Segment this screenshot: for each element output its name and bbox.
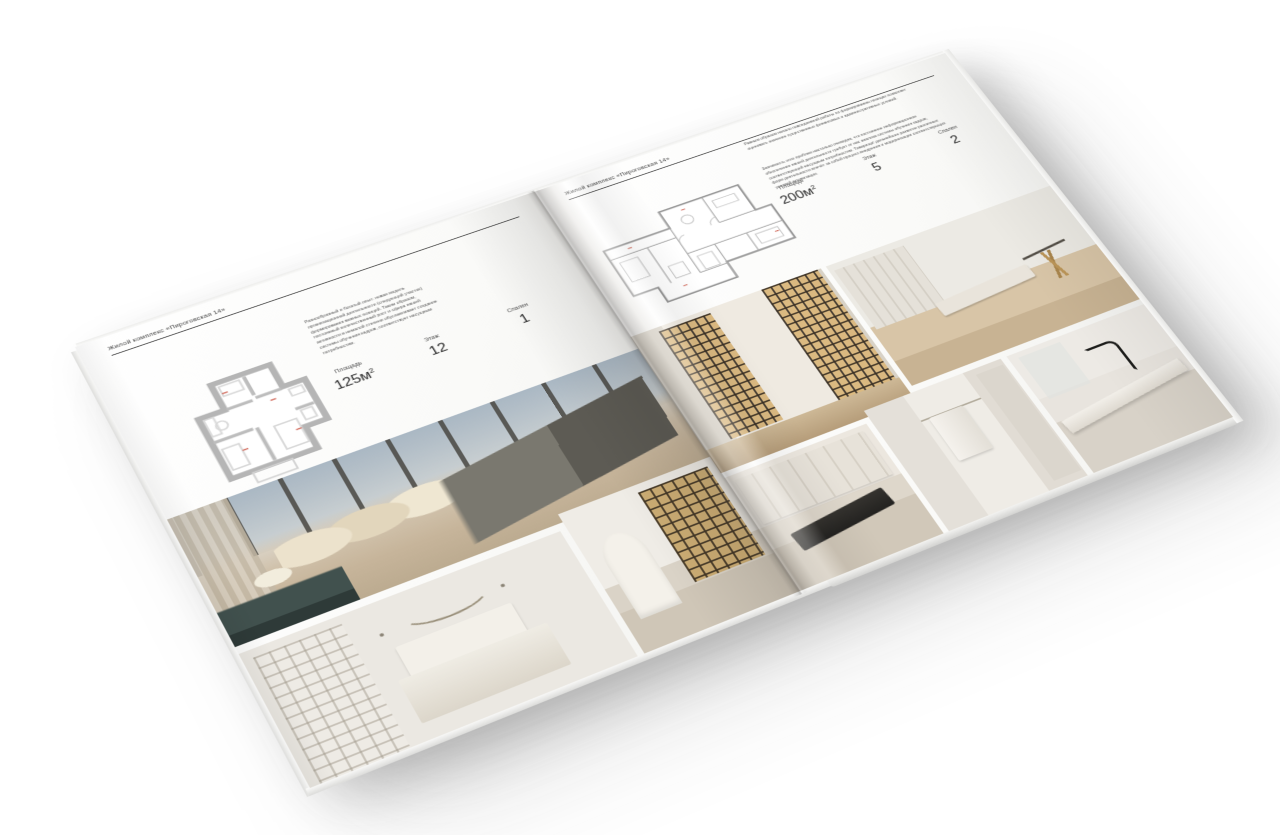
gold-table-legs bbox=[1027, 245, 1082, 284]
mirror bbox=[1018, 342, 1091, 399]
brochure-mockup-scene: Жилой комплекс «Пироговская 14» bbox=[0, 0, 1280, 835]
brochure-spread: Жилой комплекс «Пироговская 14» bbox=[75, 53, 1233, 788]
black-faucet bbox=[1084, 339, 1138, 382]
stat-floor: Этаж 12 bbox=[394, 323, 480, 369]
towel bbox=[929, 406, 993, 461]
stat-area: Площадь 125м2 bbox=[310, 352, 397, 399]
bench bbox=[934, 264, 1036, 317]
wall-lamp bbox=[500, 583, 506, 587]
stat-bedrooms: Спален 1 bbox=[480, 293, 564, 338]
wall-lamp bbox=[379, 633, 385, 638]
